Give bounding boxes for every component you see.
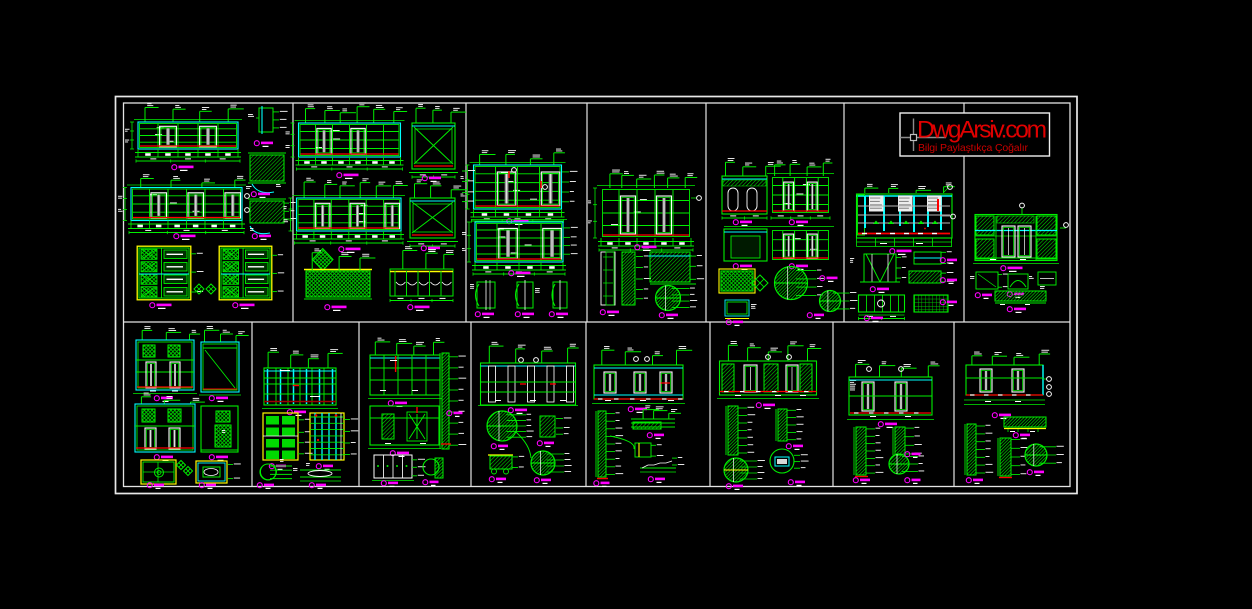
svg-text:DwgArsiv.com: DwgArsiv.com <box>917 117 1047 144</box>
svg-text:Bilgi Paylaştıkça Çoğalır: Bilgi Paylaştıkça Çoğalır <box>918 142 1029 154</box>
